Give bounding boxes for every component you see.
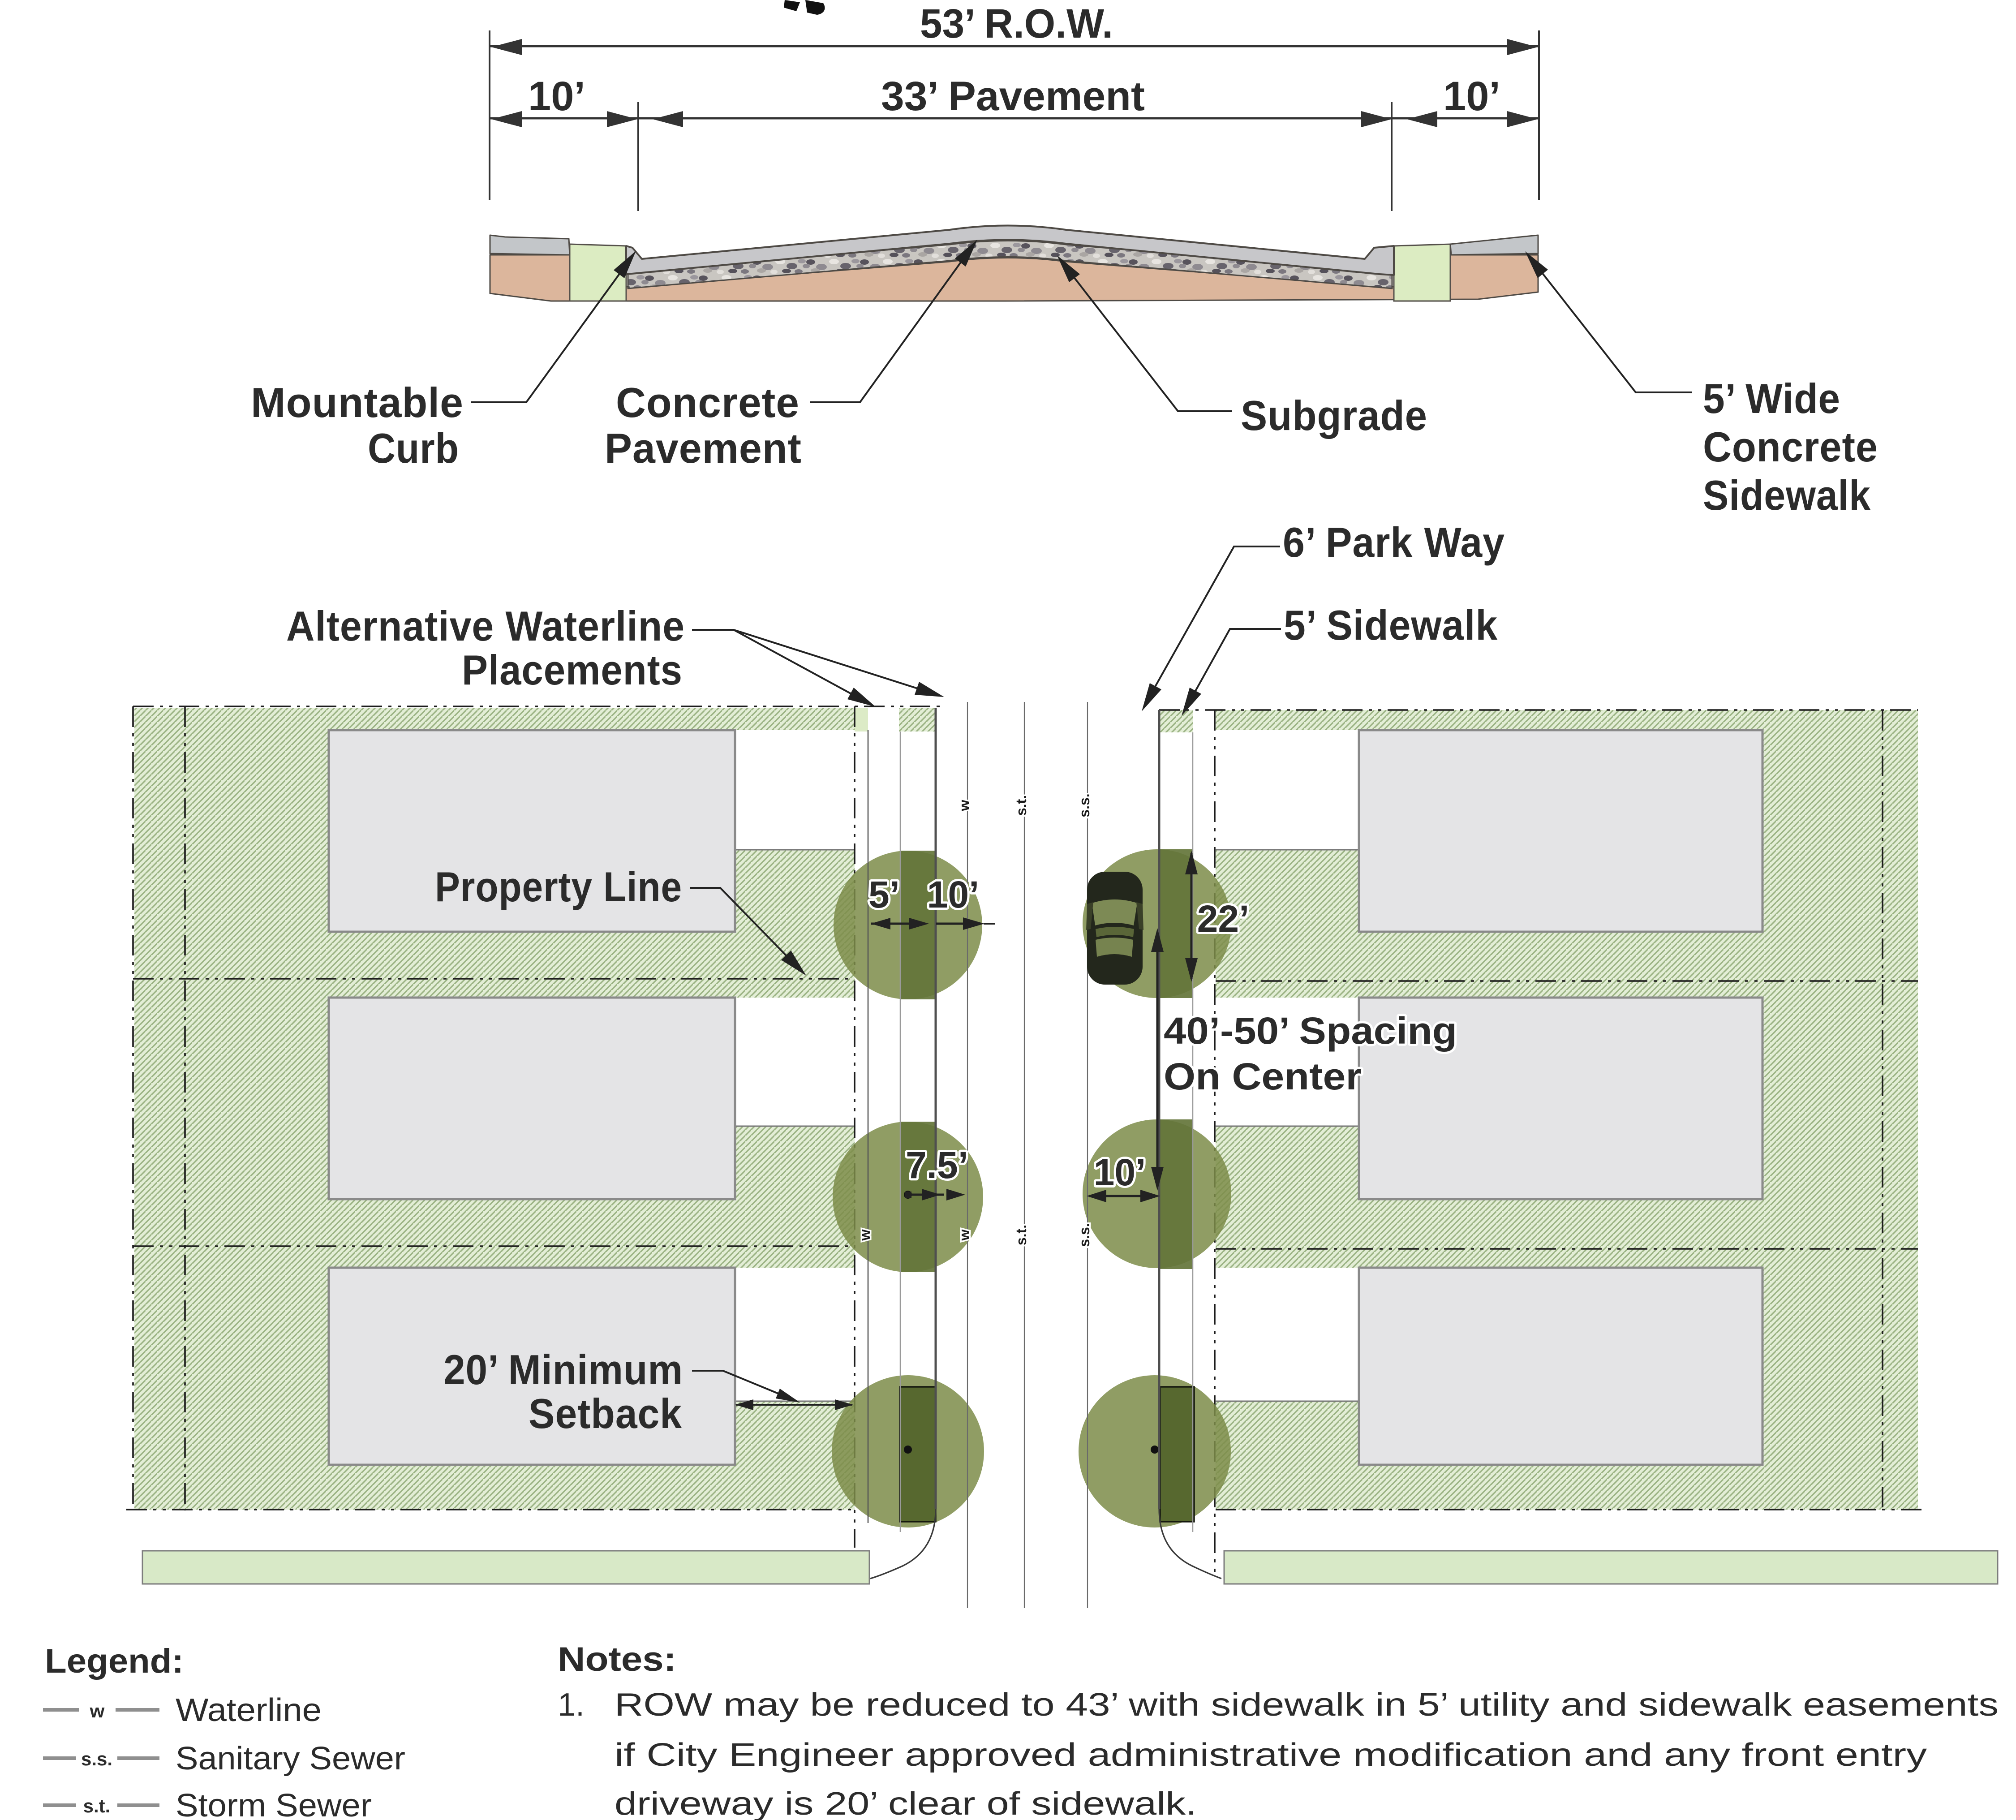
svg-text:6’ Park Way: 6’ Park Way xyxy=(1283,519,1505,566)
svg-text:Sanitary Sewer: Sanitary Sewer xyxy=(176,1741,405,1777)
svg-text:20’ Minimum: 20’ Minimum xyxy=(443,1346,683,1393)
svg-text:Storm Sewer: Storm Sewer xyxy=(176,1788,372,1820)
svg-text:s.s.: s.s. xyxy=(81,1748,112,1769)
svg-text:if City Engineer approved admi: if City Engineer approved administrative… xyxy=(615,1737,1927,1773)
svg-text:w: w xyxy=(90,1700,105,1721)
svg-text:Waterline: Waterline xyxy=(176,1692,322,1728)
svg-text:10’: 10’ xyxy=(528,73,585,119)
svg-text:10’: 10’ xyxy=(1443,73,1500,119)
svg-text:Notes:: Notes: xyxy=(558,1640,676,1678)
svg-text:driveway is 20’ clear of sidew: driveway is 20’ clear of sidewalk. xyxy=(615,1786,1197,1820)
svg-text:Property Line: Property Line xyxy=(435,863,682,910)
svg-text:On Center: On Center xyxy=(1164,1055,1362,1097)
svg-text:s.t.: s.t. xyxy=(1013,795,1029,816)
svg-text:33’ Pavement: 33’ Pavement xyxy=(881,73,1145,119)
svg-text:Sidewalk: Sidewalk xyxy=(1703,472,1871,519)
svg-text:Mountable: Mountable xyxy=(251,379,464,426)
svg-text:40’-50’ Spacing: 40’-50’ Spacing xyxy=(1164,1010,1457,1052)
svg-text:10’: 10’ xyxy=(1094,1151,1146,1193)
svg-text:ROW may be reduced to 43’ with: ROW may be reduced to 43’ with sidewalk … xyxy=(615,1687,1999,1723)
svg-text:5’: 5’ xyxy=(868,873,900,916)
svg-text:s.s.: s.s. xyxy=(1076,1223,1092,1247)
svg-text:22’: 22’ xyxy=(1197,898,1250,940)
svg-text:7.5’: 7.5’ xyxy=(906,1144,968,1186)
svg-text:s.s.: s.s. xyxy=(1076,793,1092,817)
svg-text:5’ Wide: 5’ Wide xyxy=(1703,375,1840,422)
svg-text:1.: 1. xyxy=(558,1687,585,1723)
svg-text:5’ Sidewalk: 5’ Sidewalk xyxy=(1284,602,1498,649)
svg-text:w: w xyxy=(956,800,972,811)
svg-text:Placements: Placements xyxy=(462,646,683,693)
svg-text:Legend:: Legend: xyxy=(45,1642,184,1680)
svg-text:53’ R.O.W.: 53’ R.O.W. xyxy=(920,1,1113,47)
svg-text:Concrete: Concrete xyxy=(1703,423,1878,470)
svg-text:Pavement: Pavement xyxy=(605,425,802,472)
svg-text:Subgrade: Subgrade xyxy=(1241,392,1427,439)
svg-text:w: w xyxy=(857,1229,873,1241)
svg-text:Setback: Setback xyxy=(529,1390,682,1437)
svg-text:s.t.: s.t. xyxy=(1013,1225,1029,1245)
svg-text:Alternative Waterline: Alternative Waterline xyxy=(286,602,685,650)
svg-text:w: w xyxy=(956,1229,972,1241)
svg-text:s.t.: s.t. xyxy=(83,1795,111,1816)
svg-text:Concrete: Concrete xyxy=(616,379,800,426)
svg-text:Curb: Curb xyxy=(368,425,459,472)
svg-text:10’: 10’ xyxy=(927,873,980,916)
